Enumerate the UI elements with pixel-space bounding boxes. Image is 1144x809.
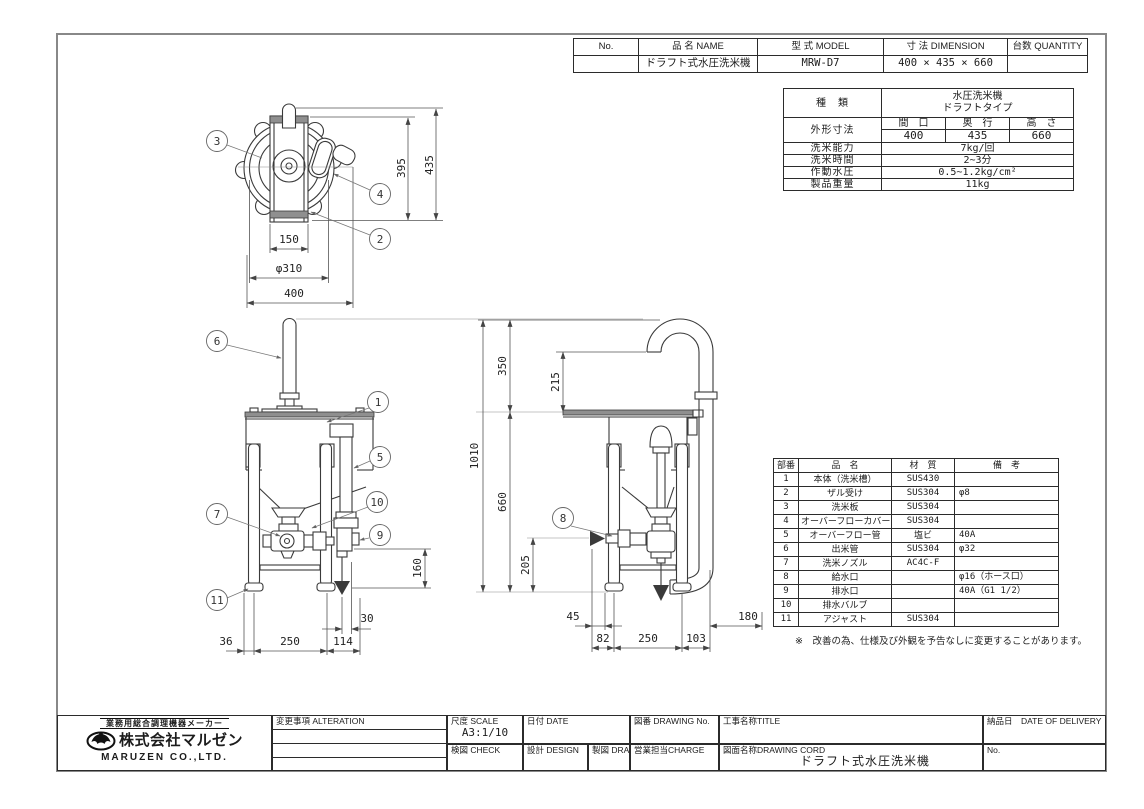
svg-text:6: 6 (214, 335, 221, 348)
parts-row: 9排水口40A（G1 1/2） (774, 585, 1059, 599)
spec-weight-label: 製品重量 (784, 179, 882, 191)
dim-spout-clearance: 215 (549, 372, 562, 392)
dim-top-width: 400 (284, 287, 304, 300)
parts-table: 部番 品 名 材 質 備 考 1本体（洗米槽）SUS430 2ザル受けSUS30… (773, 458, 1059, 627)
side-view: 8 1010 350 215 660 205 45 180 82 250 103 (468, 319, 762, 652)
dim-leg-span-side: 250 (638, 632, 658, 645)
alteration-row (272, 743, 447, 758)
spec-table: 種 類 水圧洗米機 ドラフトタイプ 外形寸法 間 口 奥 行 高 さ 400 4… (783, 88, 1074, 191)
alteration-row (272, 757, 447, 771)
callout-8: 8 (553, 508, 613, 537)
order-dimension-value: 400 × 435 × 660 (884, 56, 1008, 73)
svg-text:2: 2 (377, 233, 384, 246)
svg-text:8: 8 (560, 512, 567, 525)
order-col-quantity: 台数 QUANTITY (1008, 39, 1088, 56)
callout-7: 7 (207, 504, 281, 537)
svg-text:10: 10 (370, 496, 383, 509)
scale-cell: 尺度 SCALE A3:1/10 (447, 715, 523, 744)
callout-5: 5 (354, 447, 391, 469)
parts-col-note: 備 考 (955, 459, 1059, 473)
draw-cell: 製図 DRAW (588, 744, 630, 771)
callout-2: 2 (311, 212, 391, 250)
parts-col-name: 品 名 (799, 459, 892, 473)
dim-inner-depth: 395 (395, 158, 408, 178)
drawing-cord-cell: 図面名称DRAWING CORD ドラフト式水圧洗米機 (719, 744, 983, 771)
dim-depth: 435 (423, 155, 436, 175)
order-header-row: No. 品 名 NAME 型 式 MODEL 寸 法 DIMENSION 台数 … (574, 39, 1088, 56)
parts-row: 5オーバーフロー管塩ビ40A (774, 529, 1059, 543)
dim-total-height: 1010 (468, 443, 481, 470)
work-title-cell: 工事名称TITLE (719, 715, 983, 744)
spec-depth-value: 435 (946, 130, 1010, 143)
drain-arrow (334, 581, 350, 595)
callout-1: 1 (327, 392, 389, 423)
parts-row: 6出米管SUS304φ32 (774, 543, 1059, 557)
handle-pipe-top (283, 104, 296, 128)
scale-value: A3:1/10 (451, 727, 519, 740)
delivery-date-cell: 納品日 DATE OF DELIVERY (983, 715, 1106, 744)
tank-lid-side (563, 410, 693, 415)
callout-6: 6 (207, 331, 282, 359)
parts-row: 3洗米板SUS304 (774, 501, 1059, 515)
dim-drain-offset: 30 (360, 612, 373, 625)
spec-outline-label: 外形寸法 (784, 118, 882, 143)
disclaimer-note: ※ 改善の為、仕様及び外観を予告なしに変更することがあります。 (795, 633, 1105, 647)
overflow-pipe-front (340, 437, 352, 512)
spec-height-label: 高 さ (1010, 118, 1074, 130)
spec-capacity-value: 7kg/回 (882, 143, 1074, 155)
dim-body-height: 660 (496, 492, 509, 512)
svg-text:9: 9 (377, 529, 384, 542)
spec-weight-value: 11kg (882, 179, 1074, 191)
top-view: 150 φ310 400 395 435 3 4 2 (207, 104, 444, 308)
dim-left-offset: 36 (219, 635, 232, 648)
dim-channel-width: 150 (279, 233, 299, 246)
parts-row: 2ザル受けSUS304φ8 (774, 487, 1059, 501)
spec-pressure-value: 0.5~1.2kg/cm² (882, 167, 1074, 179)
order-no-value (574, 56, 639, 73)
order-name-value: ドラフト式水圧洗米機 (639, 56, 758, 73)
order-model-value: MRW-D7 (758, 56, 884, 73)
callout-11: 11 (207, 589, 249, 611)
spec-pressure-label: 作動水圧 (784, 167, 882, 179)
order-table: No. 品 名 NAME 型 式 MODEL 寸 法 DIMENSION 台数 … (573, 38, 1088, 73)
order-col-name: 品 名 NAME (639, 39, 758, 56)
svg-text:1: 1 (375, 396, 382, 409)
outlet-pipe-front (283, 319, 296, 394)
design-cell: 設計 DESIGN (523, 744, 588, 771)
spec-width-value: 400 (882, 130, 946, 143)
company-tagline: 業務用総合調理機器メーカー (100, 718, 229, 729)
spec-width-label: 間 口 (882, 118, 946, 130)
parts-row: 10排水バルブ (774, 599, 1059, 613)
dim-drain-height: 160 (411, 558, 424, 578)
company-name-jp: 株式会社マルゼン (119, 732, 243, 749)
order-col-dimension: 寸 法 DIMENSION (884, 39, 1008, 56)
inlet-arrow (590, 531, 605, 546)
check-cell: 検図 CHECK (447, 744, 523, 771)
spec-depth-label: 奥 行 (946, 118, 1010, 130)
maruzen-logo-icon (86, 730, 116, 751)
dim-diameter: φ310 (276, 262, 303, 275)
spec-kind-label: 種 類 (784, 89, 882, 118)
dim-inlet-height: 205 (519, 555, 532, 575)
spec-time-value: 2~3分 (882, 155, 1074, 167)
drawing-no-cell: 図番 DRAWING No. (630, 715, 719, 744)
front-view: 6 1 5 10 9 7 11 160 30 (207, 319, 644, 656)
dim-rear-clearance: 180 (738, 610, 758, 623)
callout-4: 4 (334, 174, 391, 205)
alteration-row (272, 729, 447, 744)
drawing-sheet: .ln{stroke:#3a3a3a;stroke-width:1.1;fill… (0, 0, 1144, 809)
spec-time-label: 洗米時間 (784, 155, 882, 167)
dim-front-offset: 45 (566, 610, 579, 623)
dim-spout-height: 350 (496, 356, 509, 376)
parts-row: 4オーバーフローカバーSUS304 (774, 515, 1059, 529)
charge-cell: 営業担当CHARGE (630, 744, 719, 771)
dim-front-leg-offset: 82 (596, 632, 609, 645)
spec-height-value: 660 (1010, 130, 1074, 143)
parts-col-no: 部番 (774, 459, 799, 473)
dim-leg-span-front: 250 (280, 635, 300, 648)
alteration-header: 変更事項 ALTERATION (272, 715, 447, 730)
water-inlet (606, 534, 618, 543)
dim-right-offset: 114 (333, 635, 353, 648)
dim-rear-offset: 103 (686, 632, 706, 645)
order-col-model: 型 式 MODEL (758, 39, 884, 56)
company-logo-block: 業務用総合調理機器メーカー 株式会社マルゼン MARUZEN CO.,LTD. (57, 715, 272, 771)
parts-row: 11アジャストSUS304 (774, 613, 1059, 627)
callout-9: 9 (360, 525, 391, 546)
svg-text:3: 3 (214, 135, 221, 148)
svg-text:11: 11 (210, 594, 223, 607)
no-cell: No. (983, 744, 1106, 771)
spec-capacity-label: 洗米能力 (784, 143, 882, 155)
order-data-row: ドラフト式水圧洗米機 MRW-D7 400 × 435 × 660 (574, 56, 1088, 73)
gooseneck-spout (647, 319, 713, 352)
svg-text:7: 7 (214, 508, 221, 521)
order-col-no: No. (574, 39, 639, 56)
parts-row: 8給水口φ16（ホース口） (774, 571, 1059, 585)
drawing-cord-value: ドラフト式水圧洗米機 (800, 755, 930, 769)
order-quantity-value (1008, 56, 1088, 73)
parts-col-material: 材 質 (892, 459, 955, 473)
adjuster-foot (245, 583, 263, 591)
parts-row: 1本体（洗米槽）SUS430 (774, 473, 1059, 487)
parts-header-row: 部番 品 名 材 質 備 考 (774, 459, 1059, 473)
parts-row: 7洗米ノズルAC4C-F (774, 557, 1059, 571)
svg-text:5: 5 (377, 451, 384, 464)
date-cell: 日付 DATE (523, 715, 630, 744)
company-name-en: MARUZEN CO.,LTD. (61, 752, 268, 764)
spec-kind-value: 水圧洗米機 ドラフトタイプ (882, 89, 1074, 118)
svg-text:4: 4 (377, 188, 384, 201)
